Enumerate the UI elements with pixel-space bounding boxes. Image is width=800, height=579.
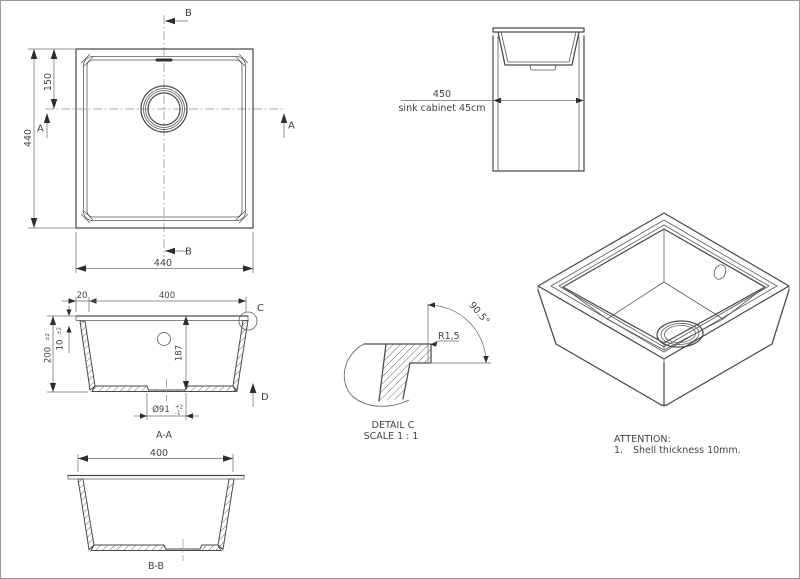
attention-item-number: 1. [614, 445, 623, 456]
section-marker-b-bottom: B [165, 247, 192, 258]
detail-c-letter: C [257, 303, 264, 314]
dim-text-10: 10 [56, 340, 66, 351]
dim-text-drain: Ø91 [152, 404, 170, 415]
direction-letter-d: D [261, 392, 269, 403]
attention-item-text: Shell thickness 10mm. [633, 445, 741, 456]
dimension-187: 187 [175, 316, 190, 390]
dimension-150: 150 [43, 49, 57, 109]
cabinet-caption: sink cabinet 45cm [398, 103, 485, 114]
section-aa-hatching [80, 321, 248, 392]
dim-tol-10: ±2 [57, 327, 63, 335]
cabinet-view: 450 sink cabinet 45cm [398, 28, 584, 171]
top-view-outline [76, 49, 253, 228]
attention-title: ATTENTION: [614, 434, 671, 445]
technical-drawing-page: B B A A 440 [0, 0, 800, 579]
sink-technical-drawing: B B A A 440 [1, 1, 799, 578]
drain-stub [530, 65, 556, 70]
top-view: B B A A 440 [23, 8, 295, 273]
countertop [493, 28, 584, 32]
detail-c-hatch [379, 344, 431, 401]
dim-text-20: 20 [77, 291, 88, 301]
section-label-b-bottom: B [185, 247, 192, 258]
section-label-b-top: B [185, 8, 192, 19]
detail-c-scale: SCALE 1 : 1 [364, 431, 419, 442]
section-aa-label: A-A [156, 430, 173, 441]
top-view-corner-chamfers [81, 54, 248, 223]
dim-text-400-bb: 400 [150, 448, 168, 459]
section-bb-label: B-B [148, 561, 164, 572]
iso-bowl-interior [563, 229, 765, 350]
detail-c-view: R1,5 90.5° DETAIL C SCALE 1 : 1 [344, 300, 491, 442]
section-marker-a-left: A [37, 113, 50, 138]
dim-text-187: 187 [175, 345, 185, 361]
dimension-20-rim: 20 [62, 291, 97, 312]
iso-body [538, 286, 789, 406]
dimension-400-opening: 400 [76, 291, 246, 312]
dim-text-440-left: 440 [23, 129, 34, 147]
dim-text-200: 200 [44, 347, 54, 363]
dim-text-450: 450 [433, 89, 451, 100]
detail-c-title: DETAIL C [372, 420, 415, 431]
dimension-10-shell: 10 ±2 [56, 306, 72, 353]
direction-marker-d: D [250, 383, 269, 407]
section-bb-hatching [78, 479, 234, 551]
overflow-hole-section [158, 333, 171, 346]
dimension-400-bb: 400 [78, 448, 233, 472]
iso-overflow-hole [712, 263, 728, 281]
section-marker-a-right: A [281, 113, 295, 138]
section-marker-b-top: B [165, 8, 192, 24]
section-bb-outline [68, 476, 244, 480]
section-label-a-right: A [288, 121, 295, 132]
section-aa-outline [76, 316, 248, 321]
section-aa-view: 20 400 200 ±2 10 ±2 [44, 291, 270, 441]
dimension-450: 450 sink cabinet 45cm [398, 89, 584, 114]
dim-tol-200: ±2 [45, 333, 51, 341]
section-label-a-left: A [37, 124, 44, 135]
section-bb-view: 400 B-B [68, 448, 244, 572]
dim-text-400-aa: 400 [159, 291, 175, 301]
sink-bowl-profile [498, 32, 579, 70]
isometric-view [538, 213, 789, 406]
iso-rim [538, 213, 789, 359]
dim-tol-drain-minus: -1 [175, 411, 180, 417]
radius-callout: R1,5 [431, 331, 460, 347]
dim-text-150: 150 [43, 73, 54, 91]
dim-text-440-bottom: 440 [154, 258, 172, 269]
dimension-440-bottom: 440 [76, 232, 253, 273]
radius-text: R1,5 [438, 331, 460, 342]
attention-note: ATTENTION: 1. Shell thickness 10mm. [614, 434, 741, 456]
